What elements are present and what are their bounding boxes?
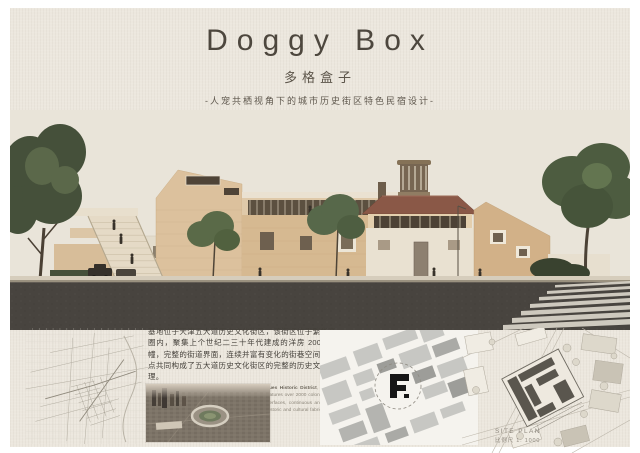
figure-ground-map [320, 330, 478, 445]
city-map-sketch [24, 328, 150, 444]
aerial-photo [146, 384, 270, 442]
street [10, 276, 630, 330]
page-title: Doggy Box [10, 24, 630, 58]
river-line [123, 336, 137, 442]
stadium [192, 406, 228, 426]
site-plan-drawing [462, 328, 630, 453]
header: Doggy Box 多格盒子 -人宠共栖视角下的城市历史街区特色民宿设计- [10, 24, 630, 107]
haze [146, 384, 270, 398]
presentation-board: Doggy Box 多格盒子 -人宠共栖视角下的城市历史街区特色民宿设计- [10, 8, 630, 447]
tagline: -人宠共栖视角下的城市历史街区特色民宿设计- [10, 94, 630, 107]
subtitle-chinese: 多格盒子 [10, 67, 630, 86]
description-chinese: 基地位于天津五大道历史文化街区，该街区位于繁华商圈内，聚集上个世纪二三十年代建成… [148, 326, 336, 382]
hero-rendering [10, 110, 630, 330]
